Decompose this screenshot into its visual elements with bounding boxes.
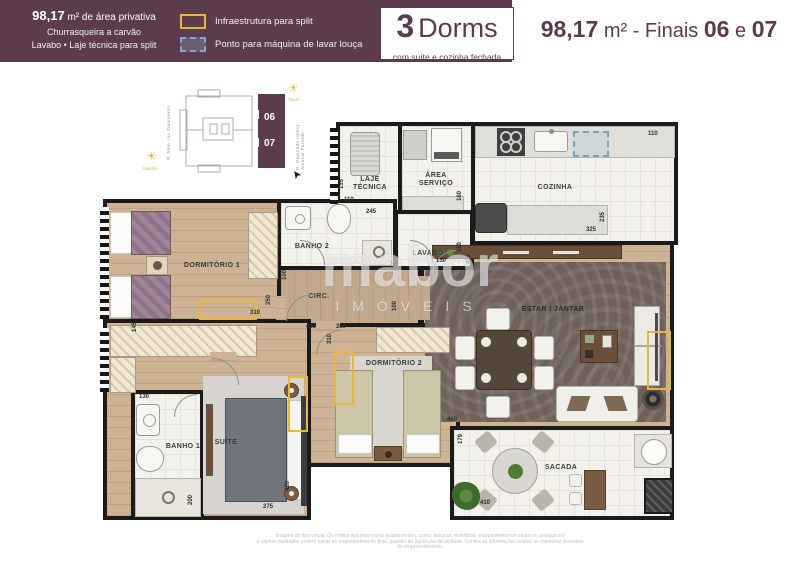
- page-title: 98,17 m² - Finais 06 e 07: [524, 16, 794, 43]
- barbecue-counter: [634, 434, 672, 468]
- desk-icon: [580, 330, 618, 363]
- bar-stool: [569, 492, 582, 505]
- suite-bed-duvet: [225, 398, 287, 502]
- nightstand-icon: [146, 256, 168, 275]
- title-final-06: 06: [704, 16, 730, 42]
- split-infra-icon: [180, 14, 206, 29]
- knob: [385, 451, 392, 458]
- washer-door: [434, 152, 459, 159]
- laundry-tank-icon: [403, 130, 427, 160]
- area-line: 98,17 m² de área privativa: [14, 8, 174, 23]
- dim-label: 245: [366, 209, 376, 215]
- bar-stool: [569, 474, 582, 487]
- dim-label: 179: [458, 434, 464, 444]
- dresser-icon: [374, 446, 402, 461]
- room-lavabo: [394, 210, 474, 270]
- sofa-throw: [604, 396, 628, 411]
- label-area-servico: ÁREASERVIÇO: [408, 172, 464, 188]
- dim-label: 275: [263, 504, 273, 510]
- charcoal-grill-icon: [644, 478, 674, 514]
- dim-label: 310: [327, 334, 333, 344]
- dining-chair: [455, 336, 475, 360]
- sun-morning-label: Manhã: [143, 166, 157, 171]
- legend-dishwasher-label: Ponto para máquina de lavar louça: [215, 39, 362, 50]
- title-area-value: 98,17: [541, 16, 599, 42]
- label-dorm2: DORMITÓRIO 2: [352, 360, 436, 368]
- wardrobe-suite-left: [110, 357, 136, 393]
- bed-pillow: [110, 276, 132, 318]
- dining-chair: [486, 396, 510, 418]
- dorms-badge: 3Dorms com suíte e cozinha fechada: [380, 7, 514, 60]
- lamp: [153, 261, 162, 270]
- dim-label: 420: [285, 481, 291, 491]
- dim-label: 100: [392, 301, 398, 311]
- double-bed-icon: [131, 211, 171, 255]
- dim-label: 425: [466, 254, 472, 264]
- fridge-icon: [475, 203, 507, 233]
- sofa-throw: [567, 396, 591, 411]
- dining-chair: [534, 366, 554, 390]
- floor-plan-page: 98,17 m² de área privativa Churrasqueira…: [0, 0, 800, 571]
- dim-label: 250: [266, 295, 272, 305]
- shower-area: [362, 240, 392, 266]
- dishwasher-point-icon: [180, 37, 206, 52]
- dining-chair: [455, 366, 475, 390]
- bed-pillow: [110, 212, 132, 254]
- dining-table-icon: [476, 330, 532, 390]
- dim-label: 150: [436, 258, 446, 264]
- dim-label: 110: [648, 131, 658, 137]
- area-value: 98,17: [32, 8, 65, 23]
- basin: [295, 214, 305, 224]
- label-estar: ESTAR / JANTAR: [505, 306, 601, 314]
- single-bed-icon: [403, 370, 441, 458]
- split-infra-box-estar: [647, 331, 671, 390]
- label-laje-l1: LAJE: [360, 176, 380, 183]
- side-table-icon: [642, 388, 664, 410]
- centerpiece-plant: [508, 464, 523, 479]
- split-infra-box-dorm1: [199, 299, 257, 320]
- dorms-word: Dorms: [418, 13, 498, 43]
- bed-pillow: [406, 434, 440, 454]
- washing-machine-icon: [431, 128, 462, 162]
- disclaimer-line-2: e objetos ilustrados podem variar no emp…: [255, 540, 585, 551]
- dim-label: 145: [132, 322, 138, 332]
- legend-item-split: Infraestrutura para split: [180, 14, 313, 29]
- double-bed-icon: [131, 275, 171, 319]
- basin: [143, 414, 156, 427]
- kitchen-sink-icon: [534, 131, 568, 152]
- vent-wall-suite: [100, 328, 109, 392]
- faucet: [549, 129, 554, 134]
- shower-head-icon: [373, 246, 385, 258]
- plate: [517, 337, 527, 347]
- door-opening: [276, 296, 286, 320]
- wardrobe-dorm1: [248, 212, 278, 279]
- balcony-plant-icon: [452, 482, 480, 510]
- label-banho1: BANHO 1: [158, 443, 208, 451]
- title-unit: m²: [604, 20, 627, 42]
- feature-line-1: Churrasqueira a carvão: [14, 27, 174, 37]
- dim-label: 325: [586, 227, 596, 233]
- dim-label: 100: [282, 270, 288, 280]
- sun-afternoon-icon: ☀: [288, 82, 299, 94]
- dim-label: 110: [457, 242, 463, 252]
- dim-label: 155: [339, 179, 345, 189]
- dim-label: 310: [250, 310, 260, 316]
- dorms-title: 3Dorms: [381, 11, 513, 48]
- area-unit-text: m² de área privativa: [65, 12, 156, 23]
- label-area-l1: ÁREA: [425, 172, 446, 179]
- disclaimer-text: Imagem do tipo virtual. Os estilos dos i…: [255, 534, 585, 551]
- plate: [481, 337, 491, 347]
- ac-condenser-icon: [350, 132, 380, 176]
- label-suite: SUÍTE: [206, 439, 246, 447]
- header-left-block: 98,17 m² de área privativa Churrasqueira…: [14, 8, 174, 50]
- lamp: [289, 491, 294, 496]
- feature-line-2: Lavabo • Laje técnica para split: [14, 40, 174, 50]
- title-conj: e: [729, 20, 751, 42]
- bathroom-sink-icon: [285, 206, 311, 230]
- dim-label: 260: [336, 324, 346, 330]
- shower-head-icon: [162, 491, 175, 504]
- dim-label: 110: [344, 197, 354, 203]
- dim-label: 460: [447, 417, 457, 423]
- label-laje: LAJETÉCNICA: [345, 176, 395, 192]
- label-cozinha: COZINHA: [520, 184, 590, 192]
- desk-item: [585, 350, 593, 358]
- balcony-bar-counter: [584, 470, 606, 510]
- bathroom-sink-icon: [136, 404, 160, 436]
- vent-wall-laje: [330, 128, 338, 212]
- legend-split-label: Infraestrutura para split: [215, 16, 313, 27]
- tray: [503, 251, 529, 254]
- bed-pillow: [338, 434, 372, 454]
- desk-plant: [585, 335, 594, 343]
- wardrobe-dorm2: [376, 327, 450, 353]
- label-sacada: SACADA: [532, 464, 590, 472]
- sofa-icon: [556, 386, 638, 422]
- stove-icon: [497, 128, 525, 156]
- tray: [553, 251, 579, 254]
- dim-label: 235: [600, 212, 606, 222]
- desk-chair: [602, 335, 612, 348]
- toilet-icon: [327, 204, 351, 234]
- dim-label: 410: [480, 500, 490, 506]
- street-name-left: R. Mon. Ivo Zanlorenzi: [166, 98, 171, 160]
- dim-label: 200: [188, 495, 194, 505]
- highlighted-units-block: [258, 94, 285, 168]
- burner: [510, 141, 522, 153]
- dorms-subtitle: com suíte e cozinha fechada: [381, 52, 513, 62]
- dishwasher-point-box: [573, 131, 609, 157]
- sun-morning-icon: ☀: [146, 150, 157, 162]
- building-key-diagram: 06 07 ☀ Tarde ☀ Manhã R. Mon. Ivo Zanlor…: [140, 80, 320, 198]
- plate: [517, 373, 527, 383]
- dining-chair: [534, 336, 554, 360]
- dorms-count: 3: [396, 8, 414, 44]
- title-final-07: 07: [752, 16, 778, 42]
- split-infra-box-dorm2: [334, 351, 354, 405]
- street-name-right: R. Deputado Heitor Alencar Furtado: [295, 108, 305, 170]
- title-middle: - Finais: [627, 20, 704, 42]
- dim-label: 130: [139, 394, 149, 400]
- vent-wall-dorm1: [100, 207, 109, 319]
- sun-afternoon-label: Tarde: [288, 97, 299, 102]
- label-area-l2: SERVIÇO: [419, 180, 453, 187]
- split-infra-box-suite: [288, 376, 308, 432]
- label-laje-l2: TÉCNICA: [353, 184, 387, 191]
- unit-07-label: 07: [264, 138, 275, 149]
- barbecue-sink-icon: [641, 439, 667, 465]
- label-dorm1: DORMITÓRIO 1: [172, 262, 252, 270]
- unit-06-label: 06: [264, 112, 275, 123]
- plate: [481, 373, 491, 383]
- legend-item-dishwasher: Ponto para máquina de lavar louça: [180, 37, 362, 52]
- dim-label: 180: [457, 191, 463, 201]
- door-opening: [408, 276, 430, 320]
- dim-label: 420: [306, 324, 316, 330]
